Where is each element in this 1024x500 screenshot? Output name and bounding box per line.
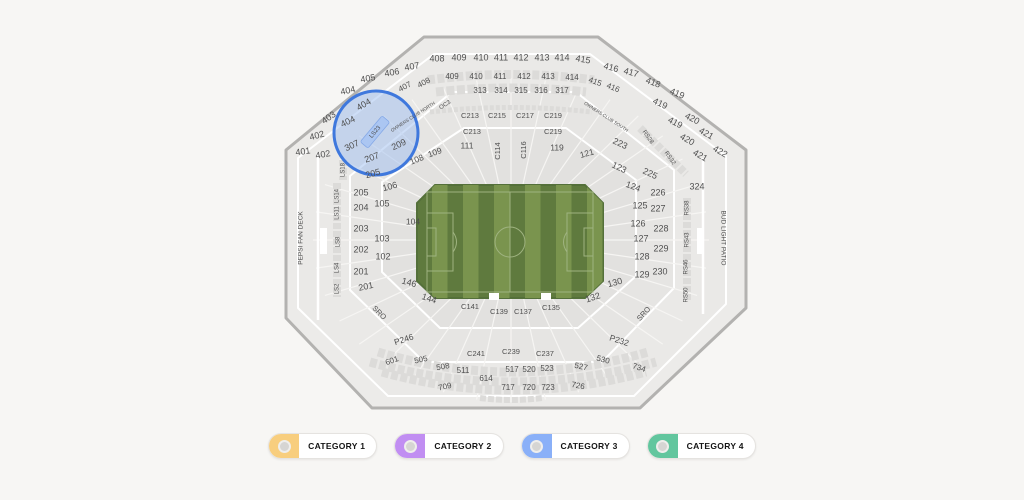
section-label-rs43[interactable]: RS43	[685, 232, 691, 248]
section-label-409[interactable]: 409	[451, 52, 466, 62]
section-label-ls18[interactable]: LS18	[341, 162, 347, 177]
category-3-label: CATEGORY 3	[552, 434, 629, 458]
section-label-c217[interactable]: C217	[516, 111, 534, 120]
section-label-201[interactable]: 201	[353, 266, 368, 276]
section-label-413[interactable]: 413	[541, 72, 555, 81]
category-1-swatch	[269, 434, 299, 458]
category-4-label: CATEGORY 4	[678, 434, 755, 458]
section-label-720[interactable]: 720	[522, 383, 536, 392]
section-label-324[interactable]: 324	[689, 181, 704, 191]
category-2-swatch	[395, 434, 425, 458]
section-label-411[interactable]: 411	[494, 72, 507, 81]
section-label-c116[interactable]: C116	[519, 141, 528, 158]
section-label-c241[interactable]: C241	[467, 349, 485, 358]
section-label-c219[interactable]: C219	[544, 111, 562, 120]
section-label-229[interactable]: 229	[653, 243, 668, 253]
section-label-rs46[interactable]: RS46	[684, 259, 690, 275]
section-label-517[interactable]: 517	[505, 365, 519, 374]
section-label-511[interactable]: 511	[457, 366, 470, 375]
category-3-dot-icon	[530, 440, 543, 453]
section-label-226[interactable]: 226	[650, 187, 665, 197]
section-label-205[interactable]: 205	[353, 187, 368, 197]
category-4-swatch	[648, 434, 678, 458]
section-label-230[interactable]: 230	[652, 266, 667, 276]
section-label-413[interactable]: 413	[534, 52, 549, 62]
category-1-label: CATEGORY 1	[299, 434, 376, 458]
section-label-bud-light-patio[interactable]: BUD LIGHT PATIO	[719, 211, 726, 266]
section-label-314[interactable]: 314	[494, 86, 508, 95]
section-label-c219[interactable]: C219	[544, 127, 562, 136]
section-label-rs50[interactable]: RS50	[684, 287, 690, 303]
section-label-c215[interactable]: C215	[488, 111, 506, 120]
section-label-rs38[interactable]: RS38	[685, 200, 691, 216]
section-label-ls4[interactable]: LS4	[335, 262, 341, 273]
section-label-202[interactable]: 202	[353, 244, 368, 254]
category-2-dot-icon	[404, 440, 417, 453]
section-label-523[interactable]: 523	[540, 364, 554, 373]
section-label-pepsi-fan-deck[interactable]: PEPSI FAN DECK	[298, 211, 305, 265]
section-label-204[interactable]: 204	[353, 202, 368, 212]
section-label-717[interactable]: 717	[501, 383, 515, 392]
section-label-ls2[interactable]: LS2	[335, 283, 341, 294]
category-1-dot-icon	[278, 440, 291, 453]
legend-category-4[interactable]: CATEGORY 4	[647, 433, 756, 459]
section-label-102[interactable]: 102	[375, 251, 390, 261]
section-label-315[interactable]: 315	[514, 86, 528, 95]
field-tunnel-mark	[541, 293, 551, 300]
section-label-227[interactable]: 227	[650, 203, 665, 213]
category-3-swatch	[522, 434, 552, 458]
stadium-map: 4014024034044044044024054064074074084084…	[0, 0, 1024, 420]
section-label-c237[interactable]: C237	[536, 349, 554, 358]
field-tunnel-mark	[489, 293, 499, 300]
section-label-317[interactable]: 317	[555, 86, 569, 95]
category-legend: CATEGORY 1 CATEGORY 2 CATEGORY 3 CATEGOR…	[0, 433, 1024, 459]
section-label-414[interactable]: 414	[554, 52, 569, 62]
section-label-520[interactable]: 520	[522, 365, 536, 374]
section-label-c114[interactable]: C114	[493, 142, 502, 159]
legend-category-2[interactable]: CATEGORY 2	[394, 433, 503, 459]
section-label-c135[interactable]: C135	[542, 303, 560, 312]
section-label-313[interactable]: 313	[473, 86, 487, 95]
section-label-c213[interactable]: C213	[463, 127, 481, 136]
section-label-228[interactable]: 228	[653, 223, 668, 233]
section-label-614[interactable]: 614	[479, 374, 493, 383]
category-2-label: CATEGORY 2	[425, 434, 502, 458]
section-label-126[interactable]: 126	[630, 218, 645, 228]
section-label-c141[interactable]: C141	[461, 302, 479, 311]
section-label-125[interactable]: 125	[632, 200, 647, 210]
playing-field	[417, 185, 603, 300]
section-label-c137[interactable]: C137	[514, 307, 532, 316]
section-label-105[interactable]: 105	[374, 198, 389, 208]
section-label-111[interactable]: 111	[461, 140, 474, 150]
section-label-408[interactable]: 408	[429, 53, 444, 63]
section-label-414[interactable]: 414	[565, 73, 579, 82]
section-label-411[interactable]: 411	[494, 52, 508, 62]
legend-category-1[interactable]: CATEGORY 1	[268, 433, 377, 459]
section-label-410[interactable]: 410	[469, 72, 483, 81]
section-label-203[interactable]: 203	[353, 223, 368, 233]
section-label-103[interactable]: 103	[374, 233, 389, 243]
legend-category-3[interactable]: CATEGORY 3	[521, 433, 630, 459]
section-label-119[interactable]: 119	[550, 142, 564, 152]
section-label-ls8[interactable]: LS8	[336, 236, 342, 247]
category-4-dot-icon	[656, 440, 669, 453]
section-label-401[interactable]: 401	[295, 145, 311, 157]
deck-notch	[320, 228, 327, 254]
section-label-410[interactable]: 410	[473, 52, 488, 62]
section-label-129[interactable]: 129	[634, 269, 649, 279]
section-label-412[interactable]: 412	[513, 52, 528, 62]
section-label-c239[interactable]: C239	[502, 347, 520, 356]
patio-notch	[697, 228, 704, 254]
section-label-316[interactable]: 316	[534, 86, 548, 95]
section-label-723[interactable]: 723	[541, 383, 555, 392]
section-label-c213[interactable]: C213	[461, 111, 479, 120]
section-label-412[interactable]: 412	[517, 72, 531, 81]
section-label-c139[interactable]: C139	[490, 307, 508, 316]
section-label-127[interactable]: 127	[633, 233, 648, 243]
section-label-128[interactable]: 128	[634, 251, 649, 261]
section-label-104[interactable]: 104	[406, 216, 420, 226]
section-label-409[interactable]: 409	[445, 72, 459, 81]
section-label-ls14[interactable]: LS14	[335, 188, 341, 203]
section-label-ls11[interactable]: LS11	[335, 206, 341, 220]
